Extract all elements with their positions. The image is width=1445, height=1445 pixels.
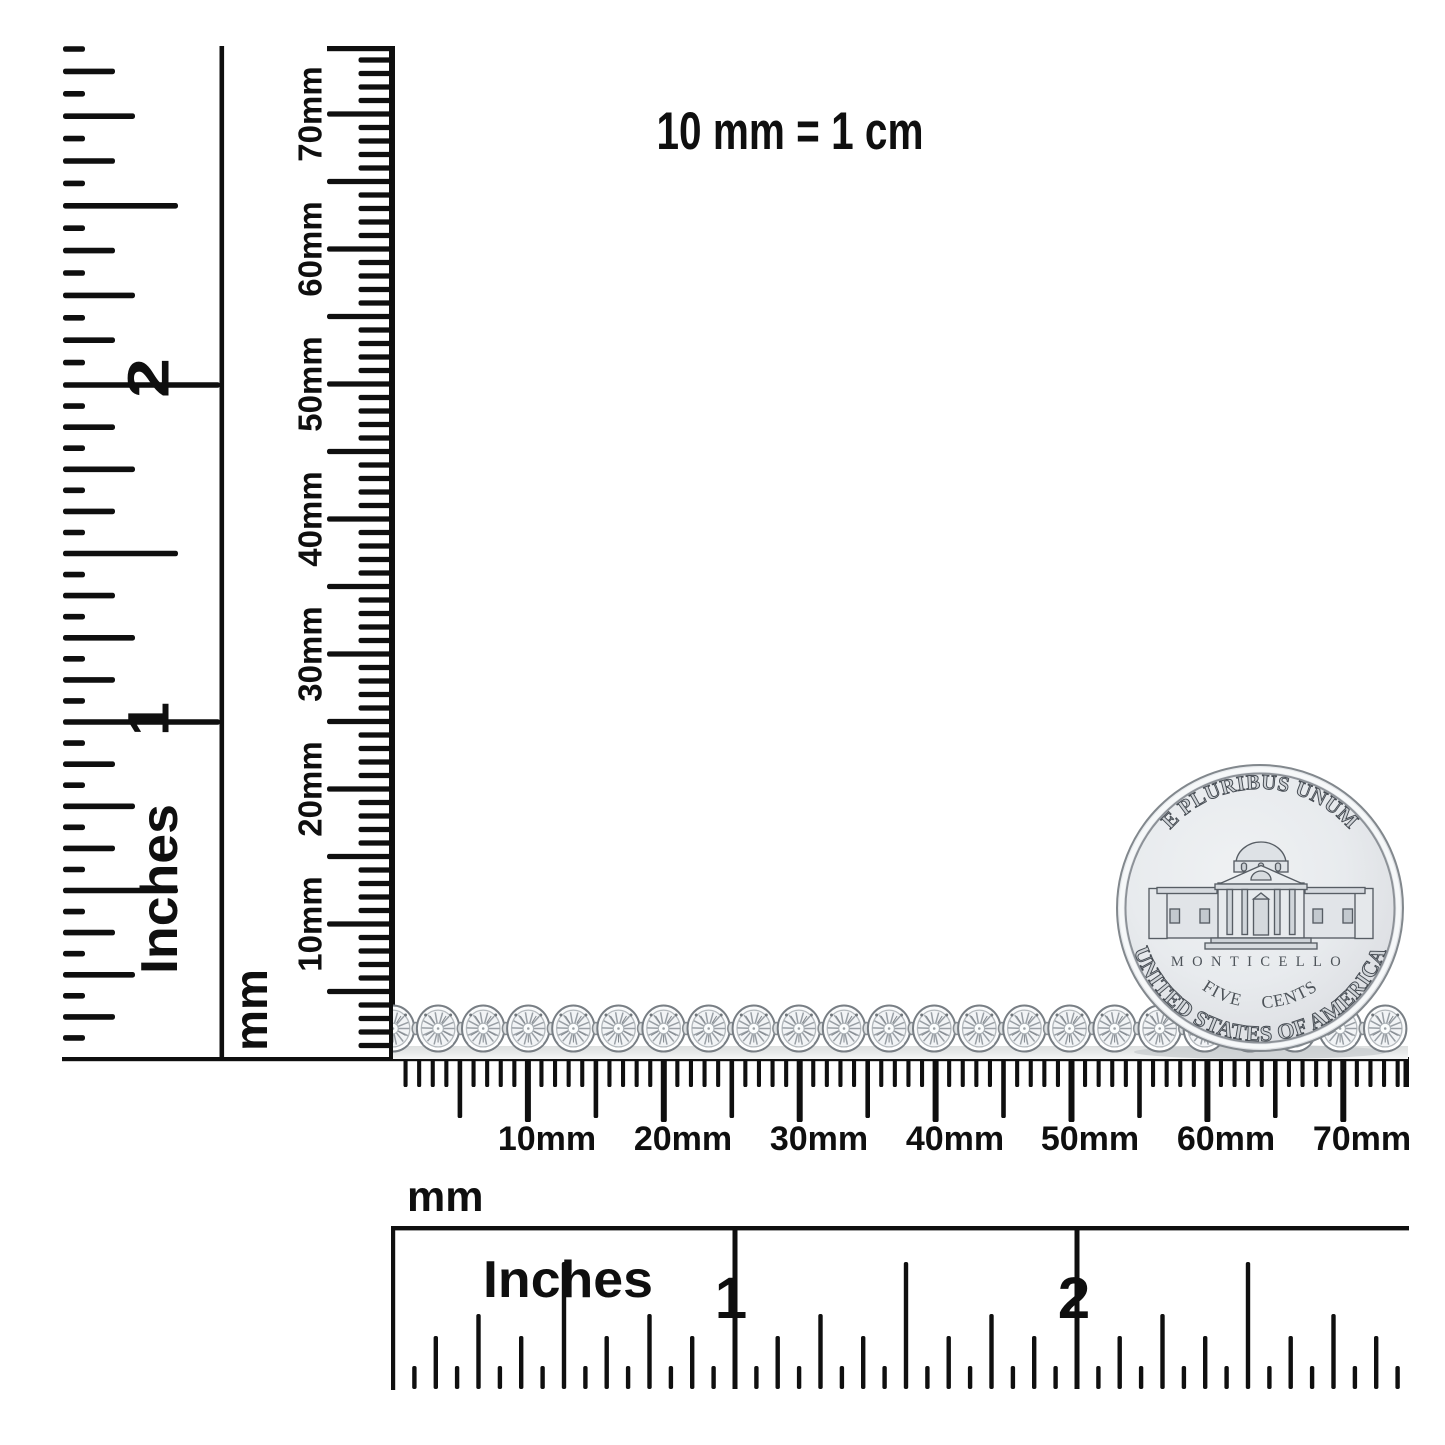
svg-text:50mm: 50mm <box>1041 1120 1139 1158</box>
svg-text:70mm: 70mm <box>292 66 329 161</box>
svg-text:Inches: Inches <box>131 804 189 974</box>
svg-text:30mm: 30mm <box>292 606 329 701</box>
svg-text:10 mm = 1 cm: 10 mm = 1 cm <box>657 102 924 161</box>
svg-text:10mm: 10mm <box>292 876 329 971</box>
svg-text:Inches: Inches <box>483 1251 653 1309</box>
svg-text:1: 1 <box>117 702 182 736</box>
svg-text:60mm: 60mm <box>1177 1120 1275 1158</box>
svg-text:60mm: 60mm <box>292 201 329 296</box>
svg-text:20mm: 20mm <box>292 741 329 836</box>
svg-text:2: 2 <box>1058 1266 1090 1331</box>
svg-text:40mm: 40mm <box>906 1120 1004 1158</box>
svg-text:50mm: 50mm <box>292 336 329 431</box>
svg-text:70mm: 70mm <box>1313 1120 1411 1158</box>
svg-text:MONTICELLO: MONTICELLO <box>1171 954 1349 970</box>
svg-text:10mm: 10mm <box>498 1120 596 1158</box>
svg-text:2: 2 <box>117 358 182 398</box>
svg-text:30mm: 30mm <box>770 1120 868 1158</box>
svg-text:mm: mm <box>225 969 277 1051</box>
svg-text:1: 1 <box>715 1266 747 1331</box>
svg-text:mm: mm <box>407 1173 483 1221</box>
svg-text:40mm: 40mm <box>292 471 329 566</box>
svg-text:20mm: 20mm <box>634 1120 732 1158</box>
